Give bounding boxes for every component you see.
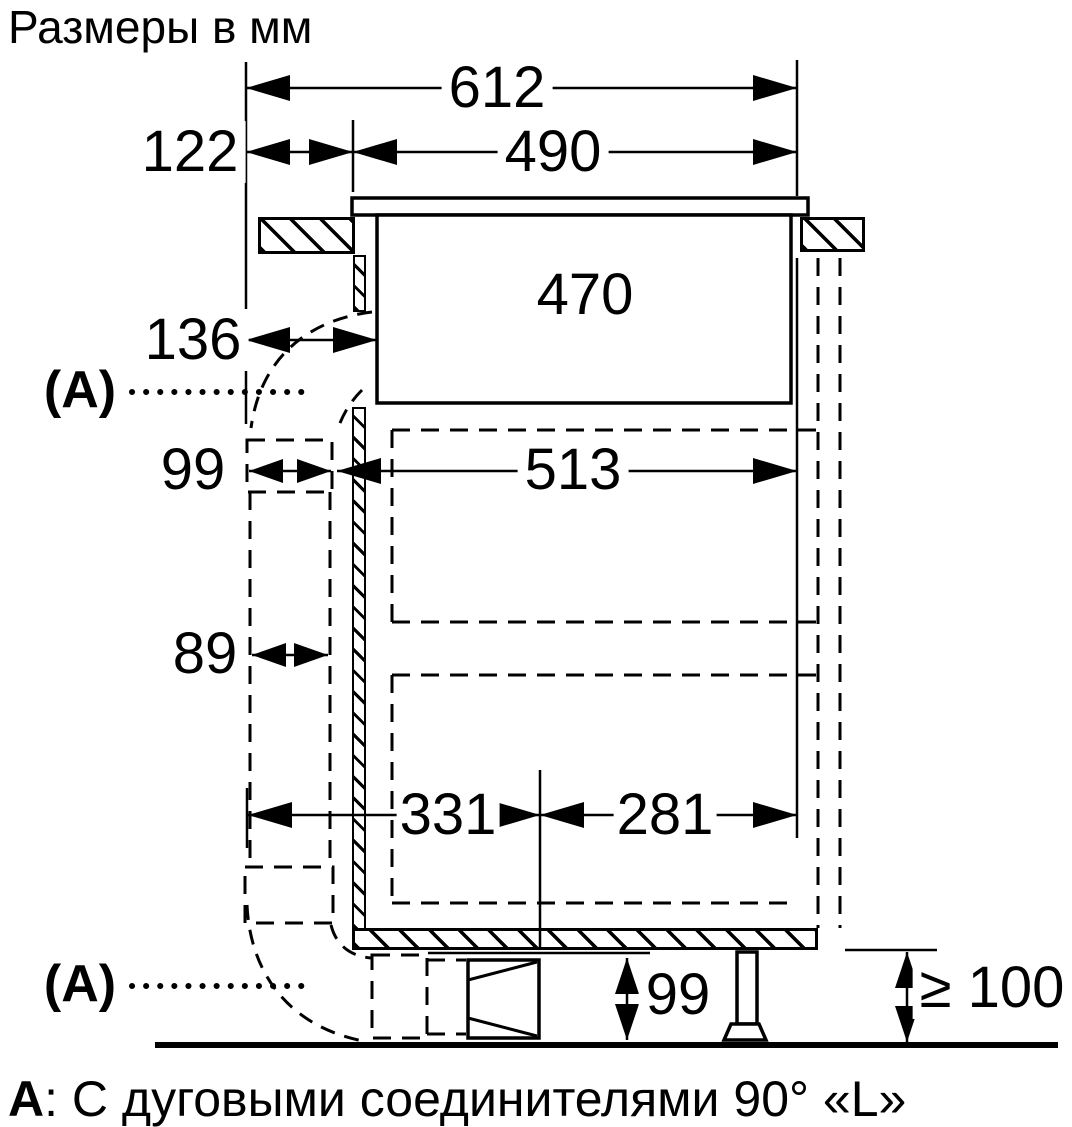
footnote-key: А (8, 1071, 44, 1127)
dim-136: 136 (138, 309, 249, 371)
dim-490: 490 (498, 121, 609, 183)
dim-99-duct: 99 (154, 439, 233, 501)
dim-89: 89 (166, 623, 245, 685)
installation-diagram: Размеры в мм 612 122 490 470 136 99 513 … (0, 0, 1072, 1127)
dim-281: 281 (614, 784, 717, 846)
dashed-duct-channel (245, 440, 466, 1038)
dim-331: 331 (397, 784, 500, 846)
dim-513: 513 (518, 439, 629, 501)
dim-99-plinth: 99 (639, 964, 718, 1026)
dim-470: 470 (530, 264, 641, 326)
extension-lines (246, 60, 937, 953)
dim-min-100: ≥ 100 (913, 957, 1072, 1019)
footnote-sep: : (44, 1071, 72, 1127)
marker-a-upper: (А) (37, 362, 123, 418)
marker-a-lower: (А) (37, 956, 123, 1012)
dim-612: 612 (442, 57, 553, 119)
cabinet-leg (724, 952, 766, 1040)
dim-122: 122 (135, 121, 246, 183)
dashed-duct-elbows (247, 312, 372, 1042)
dashed-cabinet-walls (818, 258, 840, 928)
plinth-duct-fitting (468, 960, 539, 1038)
diagram-title: Размеры в мм (8, 2, 312, 53)
hob-glass-top (352, 198, 808, 215)
footnote: А: С дуговыми соединителями 90° «L» (8, 1072, 906, 1127)
footnote-text: С дуговыми соединителями 90° «L» (72, 1071, 906, 1127)
